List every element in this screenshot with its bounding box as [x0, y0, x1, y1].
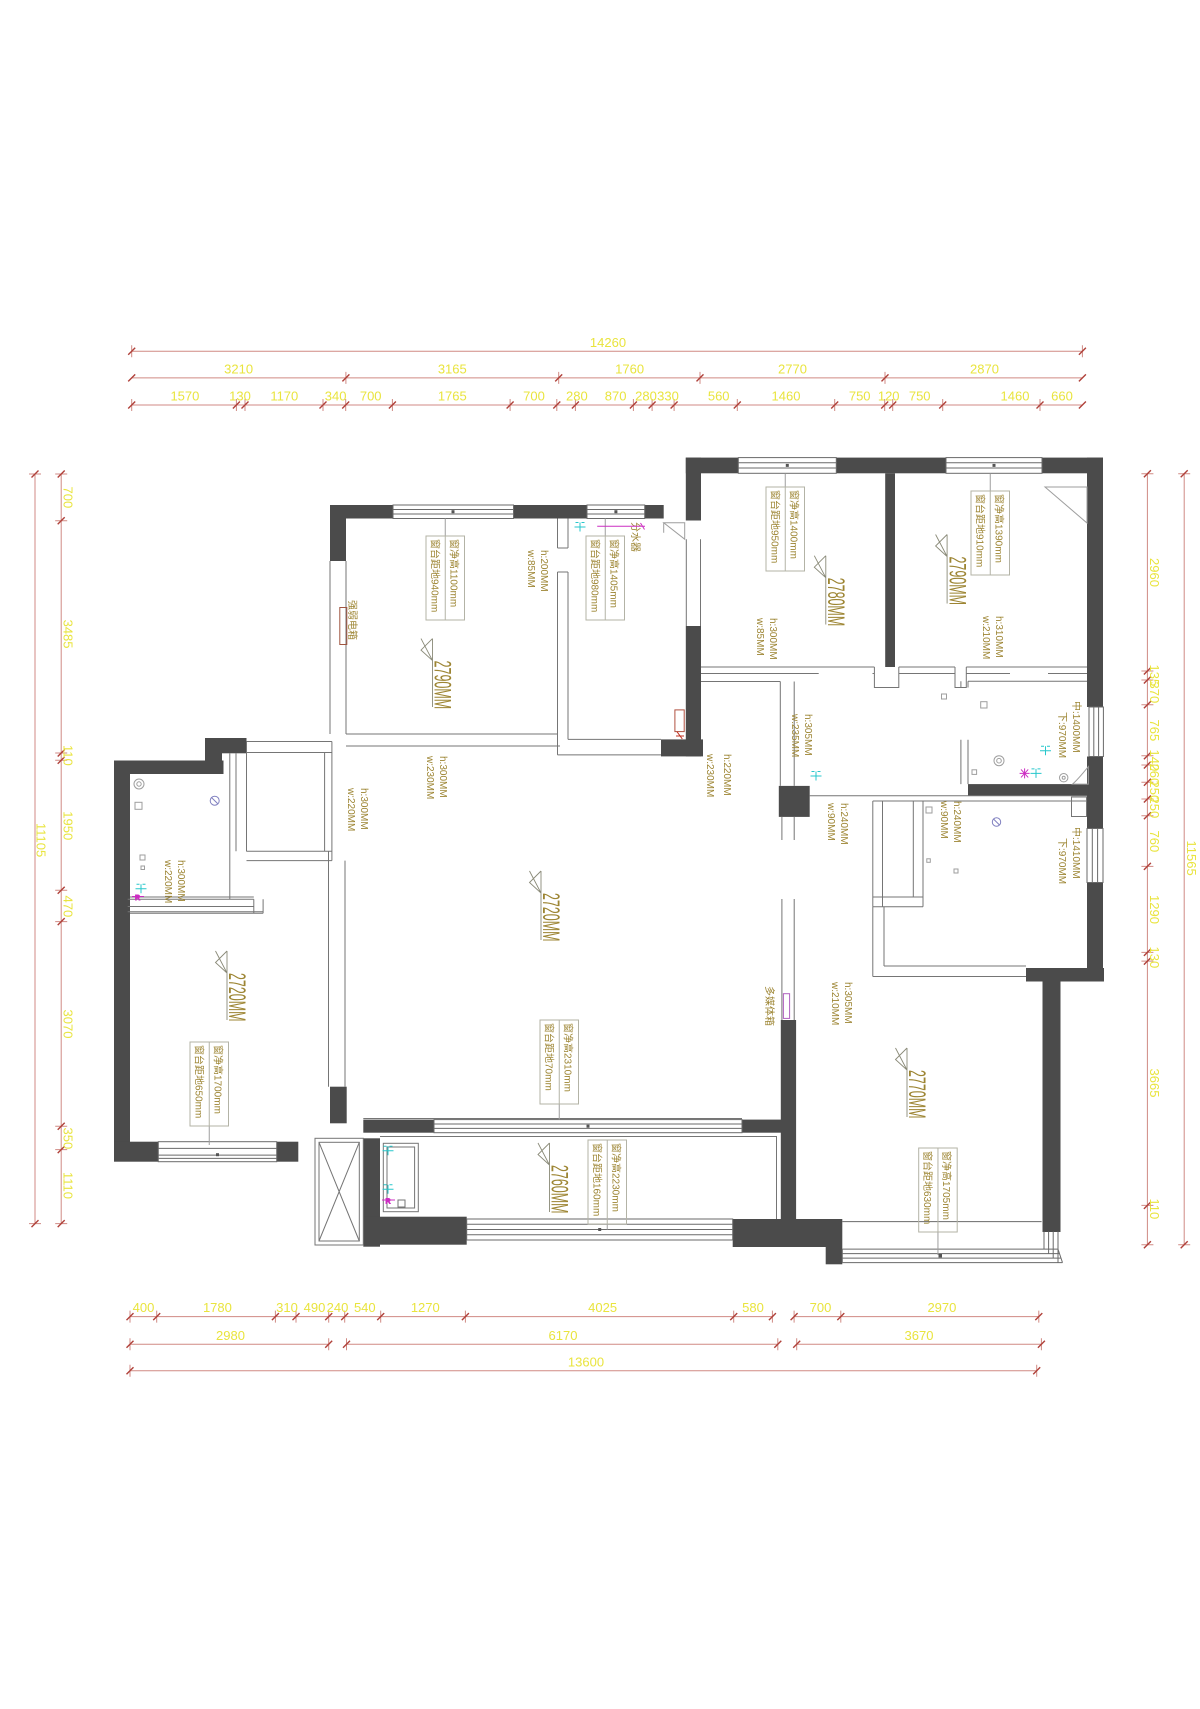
svg-text:4025: 4025	[588, 1300, 617, 1315]
svg-text:强弱电箱: 强弱电箱	[346, 600, 359, 640]
svg-text:2760MM: 2760MM	[545, 1165, 571, 1214]
svg-text:2790MM: 2790MM	[943, 557, 969, 606]
svg-text:中:1400MM: 中:1400MM	[1070, 701, 1083, 753]
svg-text:窗净高1705mm: 窗净高1705mm	[940, 1151, 953, 1220]
svg-text:h:200MM: h:200MM	[538, 550, 549, 592]
svg-text:490: 490	[304, 1300, 326, 1315]
svg-text:h:300MM: h:300MM	[358, 788, 369, 830]
svg-text:1460: 1460	[1001, 389, 1030, 404]
svg-text:h:305MM: h:305MM	[802, 714, 813, 756]
svg-text:750: 750	[849, 389, 871, 404]
svg-text:120: 120	[878, 389, 900, 404]
svg-text:2770MM: 2770MM	[903, 1070, 929, 1119]
svg-text:400: 400	[133, 1300, 155, 1315]
svg-text:1170: 1170	[270, 389, 298, 404]
svg-text:110: 110	[1147, 1199, 1162, 1220]
svg-text:w:85MM: w:85MM	[525, 549, 536, 588]
svg-text:700: 700	[360, 389, 382, 404]
svg-text:2960: 2960	[1147, 558, 1162, 587]
svg-text:h:240MM: h:240MM	[951, 801, 962, 843]
svg-text:2870: 2870	[970, 362, 999, 377]
svg-text:w:220MM: w:220MM	[345, 787, 356, 831]
svg-text:370: 370	[1147, 682, 1162, 704]
svg-text:2970: 2970	[927, 1300, 956, 1315]
svg-text:窗台距地980mm: 窗台距地980mm	[588, 539, 601, 612]
svg-text:110: 110	[61, 745, 76, 766]
svg-text:870: 870	[605, 389, 627, 404]
svg-text:1460: 1460	[772, 389, 801, 404]
svg-text:w:235MM: w:235MM	[789, 713, 800, 757]
svg-text:窗净高1405mm: 窗净高1405mm	[608, 539, 621, 608]
svg-text:窗台距地630mm: 窗台距地630mm	[921, 1151, 934, 1224]
svg-text:窗净高1390mm: 窗净高1390mm	[993, 494, 1006, 563]
svg-text:11565: 11565	[1184, 841, 1199, 876]
svg-text:窗台距地160mm: 窗台距地160mm	[590, 1143, 603, 1216]
svg-text:1290: 1290	[1147, 895, 1162, 924]
svg-text:1570: 1570	[170, 389, 199, 404]
svg-text:1950: 1950	[61, 811, 76, 840]
svg-text:350: 350	[61, 1128, 76, 1150]
svg-text:h:300MM: h:300MM	[437, 756, 448, 798]
svg-text:R: R	[386, 1198, 391, 1205]
svg-text:330: 330	[657, 389, 679, 404]
svg-text:w:220MM: w:220MM	[162, 859, 173, 903]
svg-text:765: 765	[1147, 720, 1162, 742]
svg-text:多媒体箱: 多媒体箱	[763, 986, 776, 1026]
svg-text:1760: 1760	[615, 362, 644, 377]
svg-text:310: 310	[276, 1300, 298, 1315]
svg-text:下:970MM: 下:970MM	[1056, 838, 1067, 884]
svg-text:窗台距地650mm: 窗台距地650mm	[192, 1045, 205, 1118]
svg-text:700: 700	[523, 389, 545, 404]
svg-text:130: 130	[229, 389, 251, 404]
svg-text:700: 700	[61, 487, 76, 509]
svg-text:1270: 1270	[411, 1300, 440, 1315]
svg-text:14260: 14260	[590, 335, 626, 350]
svg-text:w:210MM: w:210MM	[980, 615, 991, 659]
svg-text:13600: 13600	[568, 1355, 604, 1370]
svg-text:700: 700	[810, 1300, 832, 1315]
svg-text:2770: 2770	[778, 362, 807, 377]
svg-text:窗台距地70mm: 窗台距地70mm	[542, 1023, 555, 1091]
svg-text:h:220MM: h:220MM	[721, 754, 732, 796]
svg-text:窗台距地950mm: 窗台距地950mm	[768, 490, 781, 563]
svg-text:3665: 3665	[1147, 1069, 1162, 1098]
svg-text:580: 580	[742, 1300, 764, 1315]
svg-text:窗净高2310mm: 窗净高2310mm	[562, 1023, 575, 1092]
svg-text:1765: 1765	[438, 389, 467, 404]
svg-text:3210: 3210	[224, 362, 253, 377]
svg-text:3670: 3670	[905, 1328, 934, 1343]
svg-text:窗净高1100mm: 窗净高1100mm	[448, 539, 461, 607]
svg-text:3485: 3485	[61, 620, 76, 649]
svg-text:2780MM: 2780MM	[822, 578, 848, 627]
svg-text:340: 340	[325, 389, 347, 404]
svg-text:660: 660	[1051, 389, 1073, 404]
svg-text:280: 280	[635, 389, 657, 404]
svg-text:470: 470	[61, 896, 76, 918]
svg-text:w:210MM: w:210MM	[829, 981, 840, 1025]
svg-text:w:90MM: w:90MM	[825, 802, 836, 841]
svg-text:h:300MM: h:300MM	[767, 618, 778, 660]
svg-text:下:970MM: 下:970MM	[1056, 712, 1067, 758]
svg-text:760: 760	[1147, 831, 1162, 853]
svg-text:h:310MM: h:310MM	[993, 616, 1004, 658]
svg-text:540: 540	[354, 1300, 376, 1315]
svg-text:2720MM: 2720MM	[537, 893, 563, 942]
svg-text:窗台距地910mm: 窗台距地910mm	[973, 494, 986, 567]
svg-text:w:230MM: w:230MM	[424, 755, 435, 799]
svg-text:h:240MM: h:240MM	[838, 803, 849, 845]
svg-text:280: 280	[566, 389, 588, 404]
svg-text:w:90MM: w:90MM	[938, 800, 949, 839]
svg-text:6170: 6170	[549, 1328, 578, 1343]
svg-text:2790MM: 2790MM	[428, 661, 454, 710]
svg-text:2980: 2980	[216, 1328, 245, 1343]
svg-text:R: R	[135, 895, 140, 902]
svg-text:1780: 1780	[203, 1300, 232, 1315]
svg-text:w:85MM: w:85MM	[754, 617, 765, 656]
svg-text:3070: 3070	[61, 1010, 76, 1039]
svg-text:240: 240	[327, 1300, 349, 1315]
svg-text:11105: 11105	[34, 823, 49, 857]
svg-text:窗台距地940mm: 窗台距地940mm	[428, 539, 441, 612]
svg-text:h:300MM: h:300MM	[175, 860, 186, 902]
svg-text:2720MM: 2720MM	[223, 973, 249, 1022]
svg-text:窗净高2230mm: 窗净高2230mm	[610, 1143, 623, 1212]
svg-text:560: 560	[708, 389, 730, 404]
svg-text:130: 130	[1147, 947, 1162, 969]
svg-text:中:1410MM: 中:1410MM	[1070, 827, 1083, 879]
svg-text:窗净高1400mm: 窗净高1400mm	[788, 490, 801, 559]
svg-text:w:230MM: w:230MM	[704, 753, 715, 797]
svg-text:h:305MM: h:305MM	[842, 982, 853, 1024]
svg-text:3165: 3165	[438, 362, 467, 377]
svg-text:250: 250	[1147, 797, 1162, 819]
svg-text:1110: 1110	[61, 1172, 76, 1199]
svg-text:750: 750	[909, 389, 931, 404]
svg-text:窗净高1700mm: 窗净高1700mm	[212, 1045, 225, 1114]
